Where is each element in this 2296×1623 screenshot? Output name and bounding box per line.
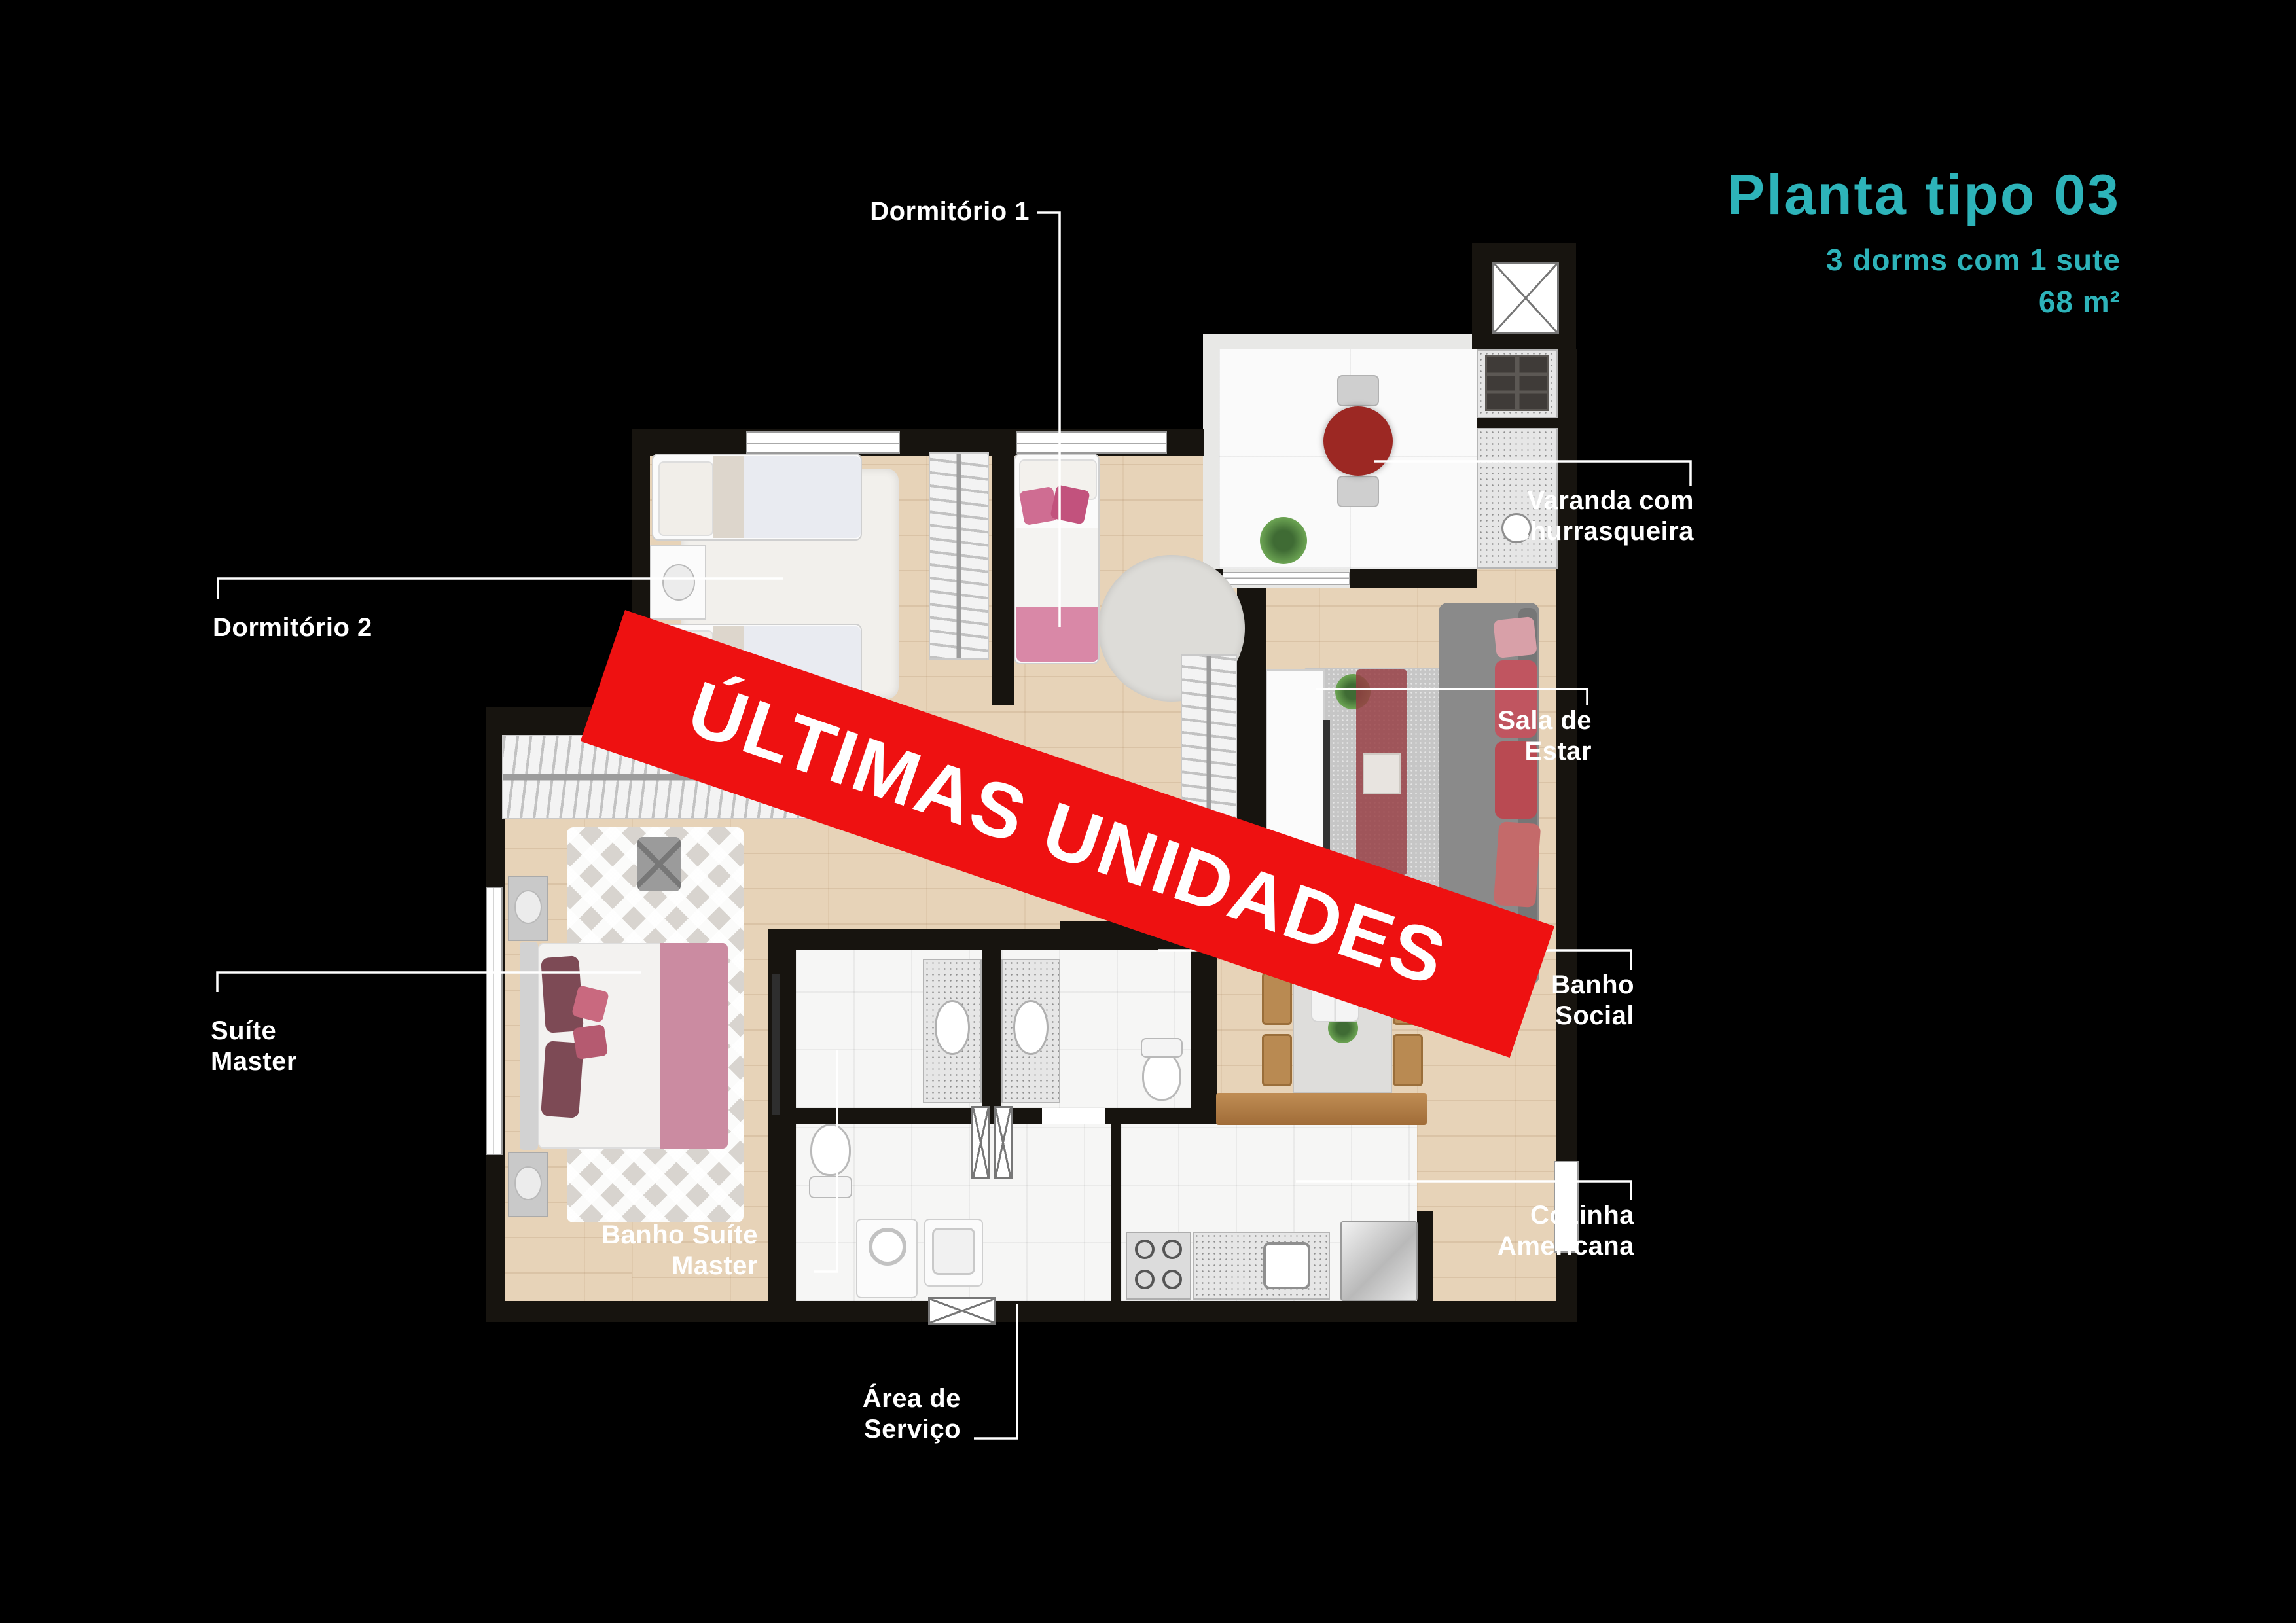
label-suite-master-line2: Master [211, 1046, 297, 1077]
label-dormitorio-1: Dormitório 1 [870, 196, 1030, 227]
leader-sala-estar [1316, 689, 1587, 705]
label-varanda: Varanda com churrasqueira [1515, 486, 1694, 547]
label-sala-estar-line2: Estar [1498, 736, 1592, 767]
label-cozinha: Cozinha Americana [1498, 1200, 1634, 1262]
label-suite-master-line1: Suíte [211, 1016, 297, 1046]
floorplan-poster: ÚLTIMAS UNIDADES Dormitório 1 Dormitório… [0, 0, 2296, 1623]
label-banho-social-line1: Banho [1551, 970, 1634, 1001]
label-area-servico-line1: Área de [863, 1383, 961, 1414]
leader-dormitorio-1 [1037, 213, 1060, 627]
label-cozinha-line2: Americana [1498, 1231, 1634, 1262]
leader-area-servico [974, 1304, 1017, 1438]
leader-banho-suite-master [814, 1050, 837, 1272]
label-area-servico: Área de Serviço [863, 1383, 961, 1445]
label-banho-suite-master-line2: Master [601, 1251, 758, 1281]
leader-dormitorio-2 [218, 579, 783, 599]
label-banho-suite-master-line1: Banho Suíte [601, 1220, 758, 1251]
label-varanda-line2: churrasqueira [1515, 516, 1694, 547]
label-varanda-line1: Varanda com [1515, 486, 1694, 516]
label-cozinha-line1: Cozinha [1498, 1200, 1634, 1231]
label-banho-suite-master: Banho Suíte Master [601, 1220, 758, 1281]
leader-cozinha [1296, 1181, 1631, 1200]
plan-title: Planta tipo 03 [1727, 165, 2121, 225]
label-sala-estar: Sala de Estar [1498, 705, 1592, 767]
label-suite-master: Suíte Master [211, 1016, 297, 1077]
label-dormitorio-2-text: Dormitório 2 [213, 613, 372, 642]
label-dormitorio-1-text: Dormitório 1 [870, 197, 1030, 226]
label-area-servico-line2: Serviço [863, 1414, 961, 1445]
label-dormitorio-2: Dormitório 2 [213, 613, 372, 643]
label-sala-estar-line1: Sala de [1498, 705, 1592, 736]
label-banho-social-line2: Social [1551, 1001, 1634, 1031]
plan-subtitle: 3 dorms com 1 sute [1727, 242, 2121, 277]
leader-varanda [1374, 461, 1691, 486]
plan-area: 68 m² [1727, 284, 2121, 319]
leader-suite-master [217, 972, 641, 992]
title-block: Planta tipo 03 3 dorms com 1 sute 68 m² [1727, 165, 2121, 319]
label-banho-social: Banho Social [1551, 970, 1634, 1031]
